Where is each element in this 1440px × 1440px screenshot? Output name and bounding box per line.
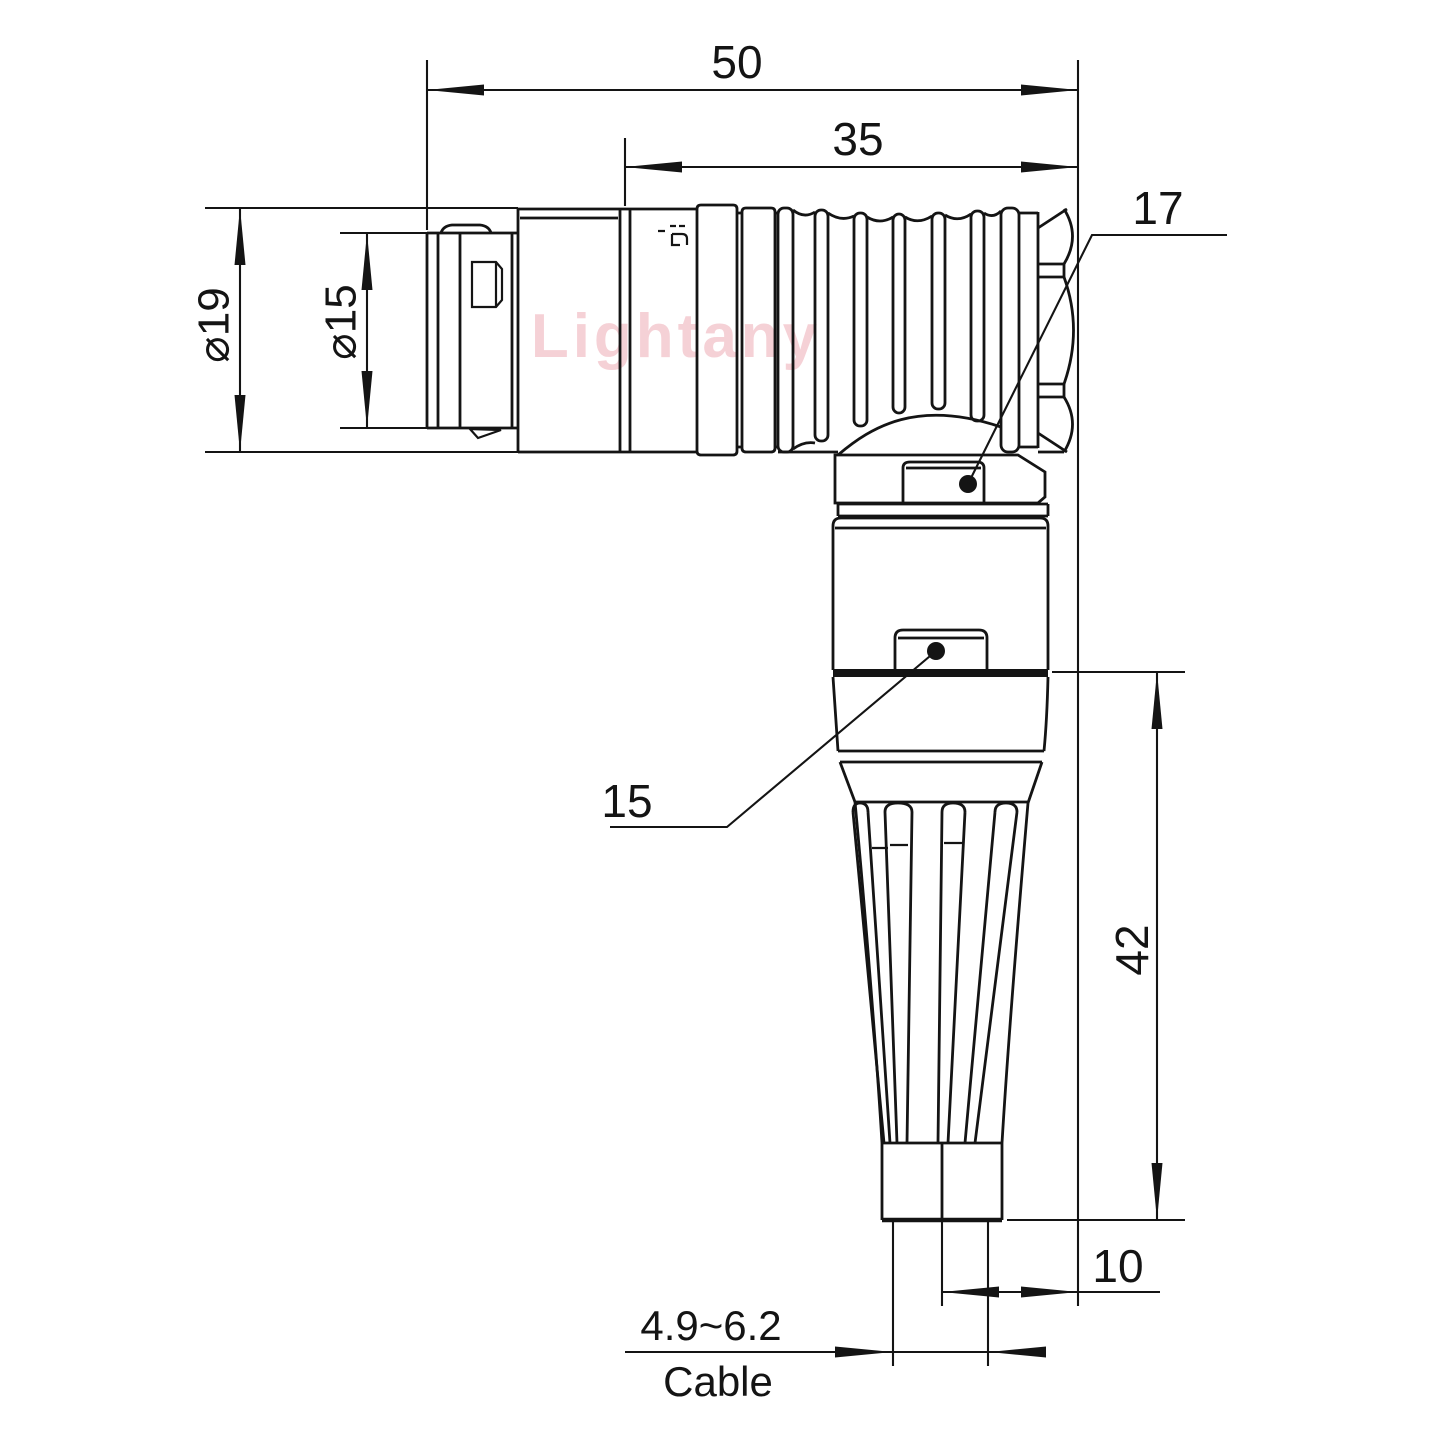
rib bbox=[854, 213, 867, 426]
dim-overall-length-label: 50 bbox=[711, 36, 762, 88]
grip-valleys-bottom bbox=[778, 443, 838, 452]
boot-slot bbox=[938, 803, 965, 1143]
washer-ring bbox=[838, 504, 1048, 516]
dim-nut-width-label: 17 bbox=[1132, 182, 1183, 234]
rib bbox=[932, 213, 945, 409]
dim-elbow-width-label: 15 bbox=[601, 775, 652, 827]
rib bbox=[893, 214, 905, 413]
leader-line bbox=[968, 235, 1227, 484]
part-elbow-body bbox=[833, 455, 1048, 803]
latch-bottom-tab bbox=[470, 429, 501, 438]
brand-marking bbox=[658, 226, 687, 245]
connector-technical-drawing: Lightany bbox=[0, 0, 1440, 1440]
part-strain-relief-boot bbox=[853, 802, 1028, 1220]
drawing-canvas: Lightany bbox=[0, 0, 1440, 1440]
extension-lines bbox=[1007, 672, 1185, 1220]
dim-vertical-length-label: 42 bbox=[1106, 924, 1158, 975]
dim-outer-diameter-label: ⌀19 bbox=[190, 287, 239, 362]
dim-cable-range-label: 4.9~6.2 bbox=[640, 1302, 781, 1349]
front-face bbox=[427, 233, 438, 428]
ferrule bbox=[882, 1143, 1002, 1220]
leader-nut-width: 17 bbox=[959, 182, 1227, 493]
boot-slot bbox=[885, 803, 912, 1143]
rib bbox=[1001, 208, 1019, 452]
dim-cable-diameter: 4.9~6.2 Cable bbox=[625, 1222, 1045, 1405]
dim-grip-length: 35 bbox=[625, 113, 1078, 206]
dim-grip-length-label: 35 bbox=[832, 113, 883, 165]
boot-slot bbox=[965, 803, 1017, 1143]
dim-vertical-length: 42 bbox=[1007, 672, 1185, 1220]
neck-3 bbox=[1019, 213, 1038, 447]
elbow-shoulder bbox=[838, 415, 1001, 455]
latch-window bbox=[472, 262, 502, 307]
dim-cable-offset: 10 bbox=[942, 1222, 1160, 1306]
dim-front-diameter: ⌀15 bbox=[317, 233, 428, 428]
extension-lines bbox=[893, 1222, 988, 1366]
taper-collar bbox=[840, 762, 1042, 803]
cable-gland bbox=[833, 677, 1048, 762]
dim-overall-length: 50 bbox=[427, 36, 1078, 230]
cable-label: Cable bbox=[663, 1358, 773, 1405]
dim-front-diameter-label: ⌀15 bbox=[317, 284, 366, 359]
hex-chamfers bbox=[1038, 209, 1067, 452]
hex-lobes bbox=[1064, 209, 1074, 452]
grip-ribs bbox=[778, 208, 1019, 452]
rib bbox=[971, 211, 984, 421]
hex-facets bbox=[1038, 264, 1064, 452]
dim-cable-offset-label: 10 bbox=[1092, 1240, 1143, 1292]
